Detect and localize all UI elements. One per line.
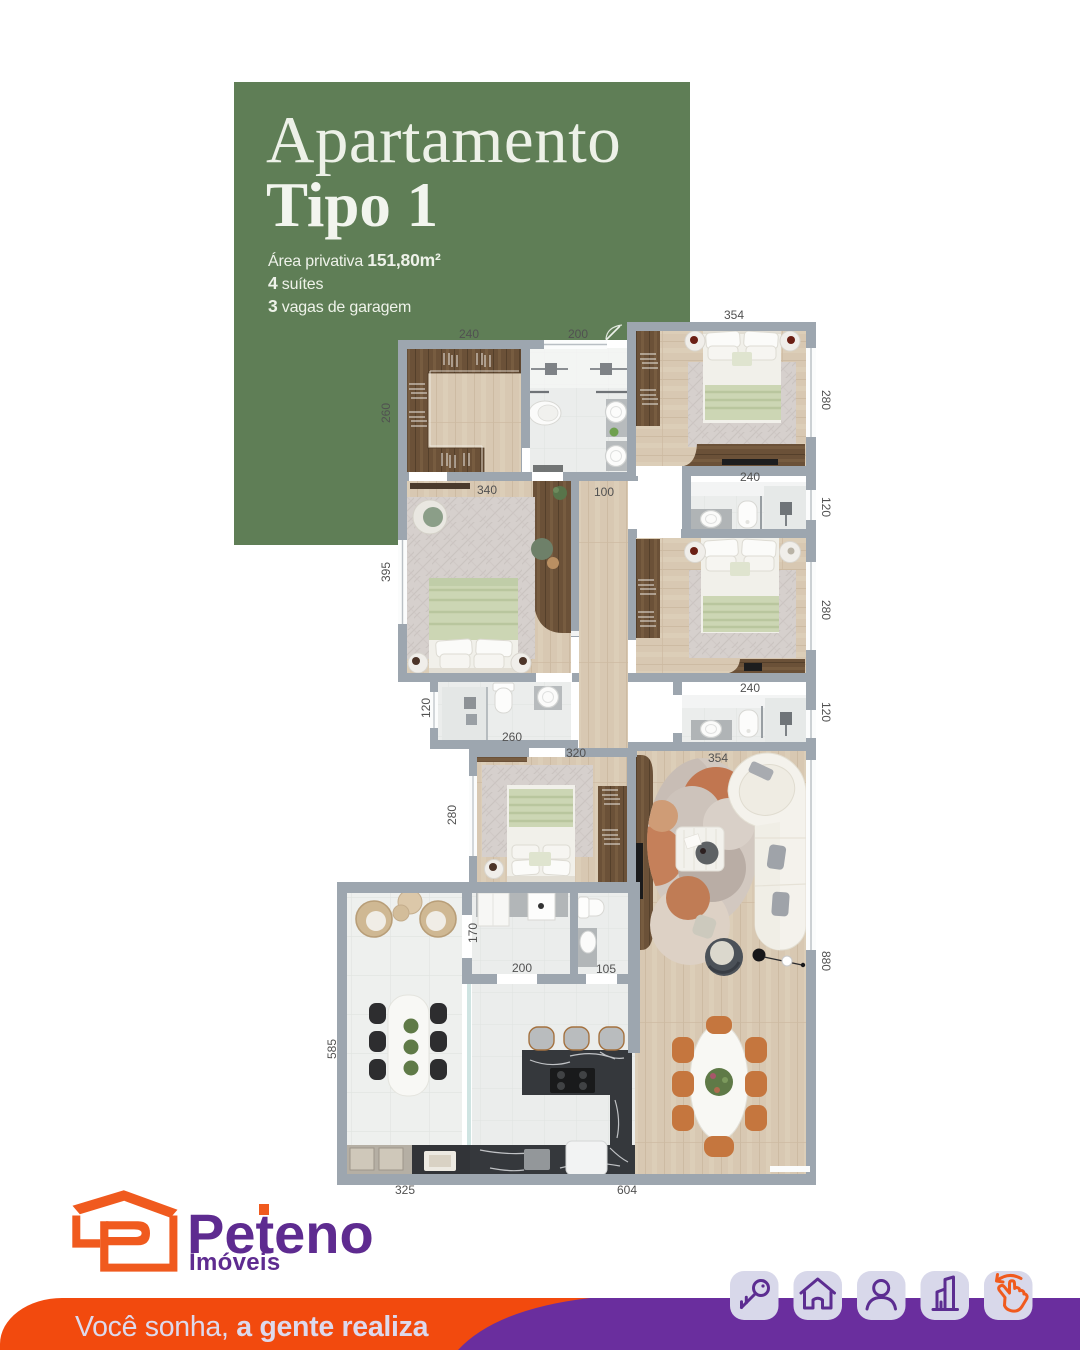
svg-text:120: 120 [819, 497, 833, 517]
svg-text:240: 240 [740, 470, 760, 484]
svg-text:880: 880 [819, 951, 833, 971]
svg-text:354: 354 [724, 308, 744, 322]
svg-text:120: 120 [819, 702, 833, 722]
svg-text:395: 395 [379, 562, 393, 582]
svg-text:585: 585 [325, 1039, 339, 1059]
svg-text:240: 240 [459, 327, 479, 341]
svg-text:320: 320 [566, 746, 586, 760]
svg-text:200: 200 [568, 327, 588, 341]
svg-text:105: 105 [596, 962, 616, 976]
svg-text:170: 170 [466, 923, 480, 943]
svg-text:100: 100 [594, 485, 614, 499]
svg-text:340: 340 [477, 483, 497, 497]
svg-text:120: 120 [419, 698, 433, 718]
svg-text:354: 354 [708, 751, 728, 765]
svg-text:325: 325 [395, 1183, 415, 1197]
svg-text:280: 280 [819, 390, 833, 410]
svg-text:280: 280 [819, 600, 833, 620]
svg-text:200: 200 [512, 961, 532, 975]
svg-text:260: 260 [502, 730, 522, 744]
svg-text:604: 604 [617, 1183, 637, 1197]
svg-text:240: 240 [740, 681, 760, 695]
svg-text:280: 280 [445, 805, 459, 825]
svg-text:260: 260 [379, 403, 393, 423]
